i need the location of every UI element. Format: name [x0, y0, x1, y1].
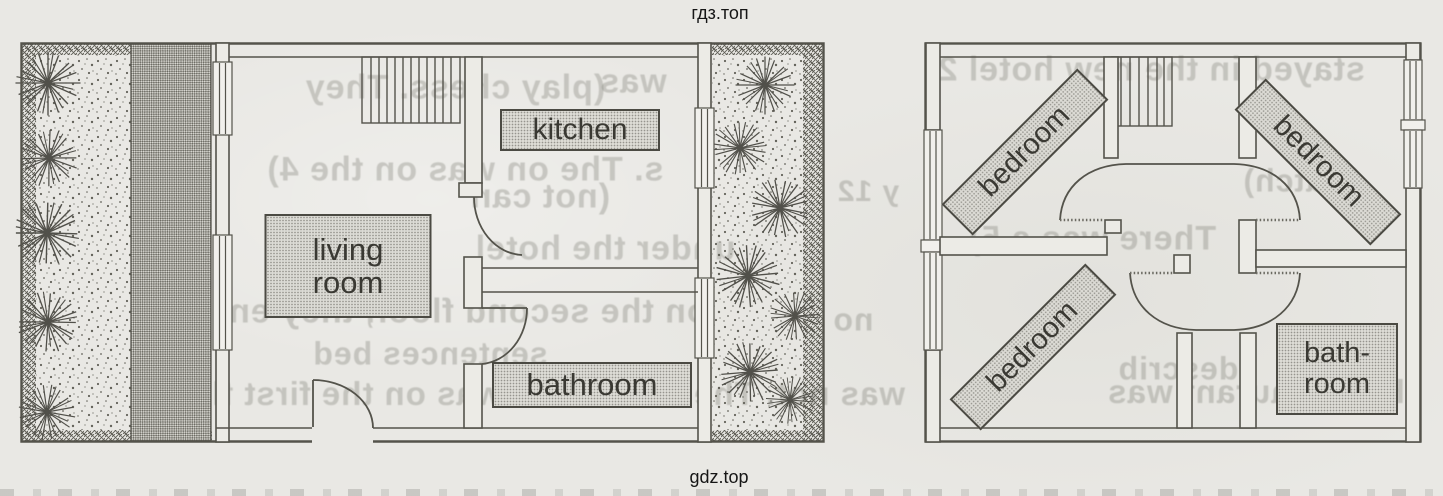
watermark-top: гдз.топ — [691, 3, 748, 24]
wall — [926, 350, 940, 442]
kitchen-label-text: kitchen — [532, 114, 627, 146]
window — [924, 130, 942, 240]
door-arc — [1060, 164, 1300, 220]
upper-bathroom-label-line2: room — [1304, 369, 1370, 400]
window — [695, 108, 714, 188]
living-room-label: living room — [265, 214, 432, 318]
wall — [698, 43, 711, 442]
floor-plans-drawing — [0, 0, 1443, 496]
upper-bathroom-label: bath- room — [1276, 323, 1398, 415]
window — [924, 252, 942, 350]
wall — [1406, 43, 1420, 60]
scanned-page: stayed in the new hotel 2) (play chess. … — [0, 0, 1443, 496]
door-arc — [1130, 273, 1300, 330]
window — [213, 235, 232, 350]
hall-wall — [459, 57, 482, 428]
upper-bathroom-label-line1: bath- — [1304, 338, 1370, 369]
garden-strip-right — [702, 44, 832, 442]
living-room-label-line1: living — [313, 233, 384, 266]
driveway-crosshatch — [131, 44, 211, 441]
door-arc — [482, 308, 527, 364]
partition-wall — [482, 268, 698, 292]
window — [695, 278, 714, 358]
window — [1404, 130, 1422, 188]
wall — [1406, 188, 1420, 442]
door-arc — [313, 380, 373, 428]
window — [213, 62, 232, 135]
living-room-label-line2: room — [313, 266, 384, 299]
wall — [926, 43, 940, 130]
kitchen-label: kitchen — [500, 109, 660, 151]
bathroom-label-text: bathroom — [527, 368, 658, 401]
window — [1404, 60, 1422, 120]
entrance-door — [313, 380, 373, 428]
door-arc — [474, 197, 522, 255]
staircase — [1112, 57, 1172, 126]
bathroom-door — [482, 308, 527, 364]
window-mullion — [1401, 120, 1425, 130]
staircase — [362, 57, 460, 123]
watermark-bottom: gdz.top — [689, 467, 748, 488]
bathroom-label: bathroom — [492, 362, 692, 408]
